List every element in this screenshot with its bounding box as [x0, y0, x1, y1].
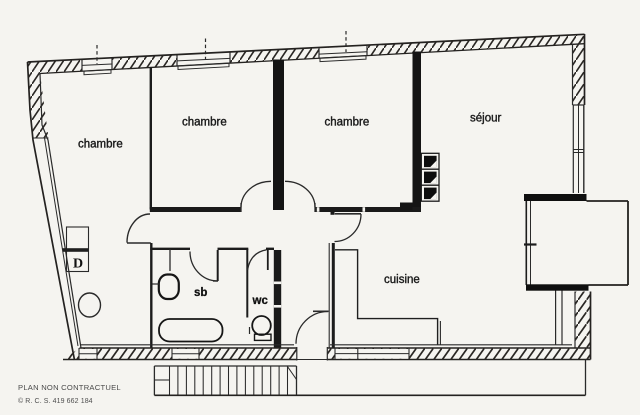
svg-text:chambre: chambre: [325, 117, 370, 129]
svg-text:séjour: séjour: [470, 113, 501, 125]
svg-text:chambre: chambre: [182, 117, 227, 129]
svg-text:wc: wc: [252, 295, 269, 307]
svg-text:chambre: chambre: [78, 139, 123, 151]
svg-text:cuisine: cuisine: [384, 274, 420, 286]
svg-text:D: D: [73, 257, 83, 272]
svg-text:sb: sb: [194, 287, 207, 299]
svg-text:© R. C. S. 419 662 184: © R. C. S. 419 662 184: [18, 397, 93, 405]
svg-text:PLAN NON CONTRACTUEL: PLAN NON CONTRACTUEL: [18, 383, 121, 392]
